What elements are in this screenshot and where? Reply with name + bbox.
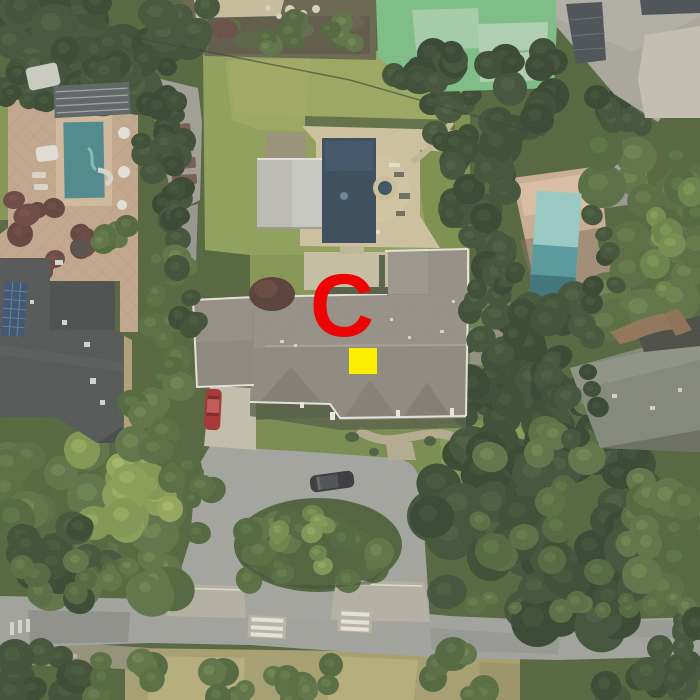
svg-text:C: C [310, 255, 374, 355]
